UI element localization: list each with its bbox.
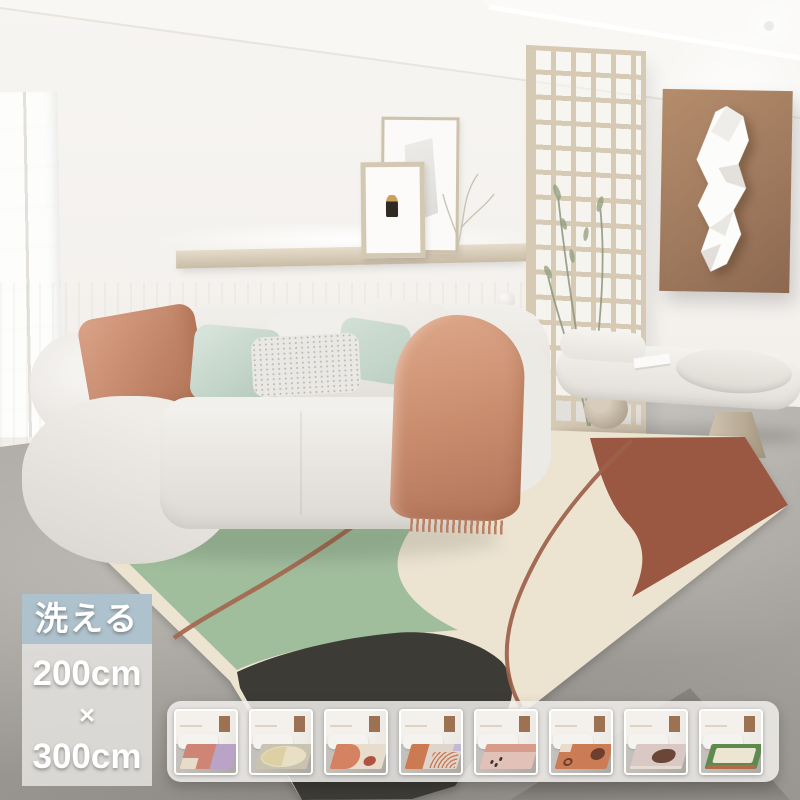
thumb-shelf: [705, 725, 727, 727]
thumb-rug-pattern: [329, 744, 363, 769]
variant-5-blush-figures[interactable]: [474, 709, 538, 775]
thumb-rug-pattern: [589, 748, 606, 760]
thumb-rug: [704, 744, 763, 769]
thumb-rug-pattern: [490, 760, 494, 764]
thumb-rug: [404, 744, 463, 769]
thumb-rug-pattern: [362, 755, 377, 765]
thumb-shelf: [180, 725, 202, 727]
thumb-rug-pattern: [179, 757, 198, 768]
thumb-rug-pattern: [452, 744, 463, 751]
thumb-art: [519, 716, 530, 732]
size-width: 200cm: [33, 656, 142, 692]
thumb-rug: [629, 744, 688, 769]
variant-8-green-border[interactable]: [699, 709, 763, 775]
thumb-art: [594, 716, 605, 732]
thumb-art: [219, 716, 230, 732]
thumb-shelf: [405, 725, 427, 727]
size-panel: 200cm × 300cm: [22, 644, 152, 786]
thumb-rug-pattern: [629, 766, 682, 769]
throw-blanket: [389, 313, 526, 522]
thumb-rug-pattern: [563, 757, 574, 765]
thumb-art: [294, 716, 305, 732]
thumb-art: [744, 716, 755, 732]
pillow-textured: [251, 332, 362, 398]
multiply-sign: ×: [79, 703, 95, 727]
thumb-rug: [329, 744, 388, 769]
variant-1-pink-patchwork[interactable]: [174, 709, 238, 775]
product-image: 洗える 200cm × 300cm: [0, 0, 800, 800]
variant-strip: [167, 701, 779, 782]
thumb-shelf: [555, 725, 577, 727]
thumb-art: [369, 716, 380, 732]
washable-badge: 洗える: [22, 594, 152, 644]
thumb-rug: [179, 744, 238, 769]
thumb-art: [444, 716, 455, 732]
thumb-rug-pattern: [712, 748, 756, 763]
thumb-art: [669, 716, 680, 732]
thumb-rug-pattern: [498, 756, 502, 760]
thumb-rug: [479, 744, 538, 769]
variant-2-cream-oval[interactable]: [249, 709, 313, 775]
thumb-shelf: [255, 725, 277, 727]
thumb-shelf: [330, 725, 352, 727]
thumb-shelf: [630, 725, 652, 727]
thumb-rug-pattern: [494, 762, 498, 766]
thumb-rug-pattern: [429, 752, 460, 768]
thumb-rug: [554, 744, 613, 769]
thumb-rug-pattern: [559, 744, 573, 752]
size-length: 300cm: [33, 739, 142, 775]
thumb-rug-pattern: [650, 748, 677, 763]
thumb-rug: [254, 744, 313, 769]
variant-4-orange-arcs[interactable]: [399, 709, 463, 775]
variant-7-mauve-blob[interactable]: [624, 709, 688, 775]
sofa-seam: [300, 411, 302, 515]
variant-3-coral-circle[interactable]: [324, 709, 388, 775]
variant-6-terracotta-circles[interactable]: [549, 709, 613, 775]
thumb-rug-pattern: [706, 765, 755, 769]
thumb-rug-pattern: [484, 744, 538, 752]
thumb-shelf: [480, 725, 502, 727]
